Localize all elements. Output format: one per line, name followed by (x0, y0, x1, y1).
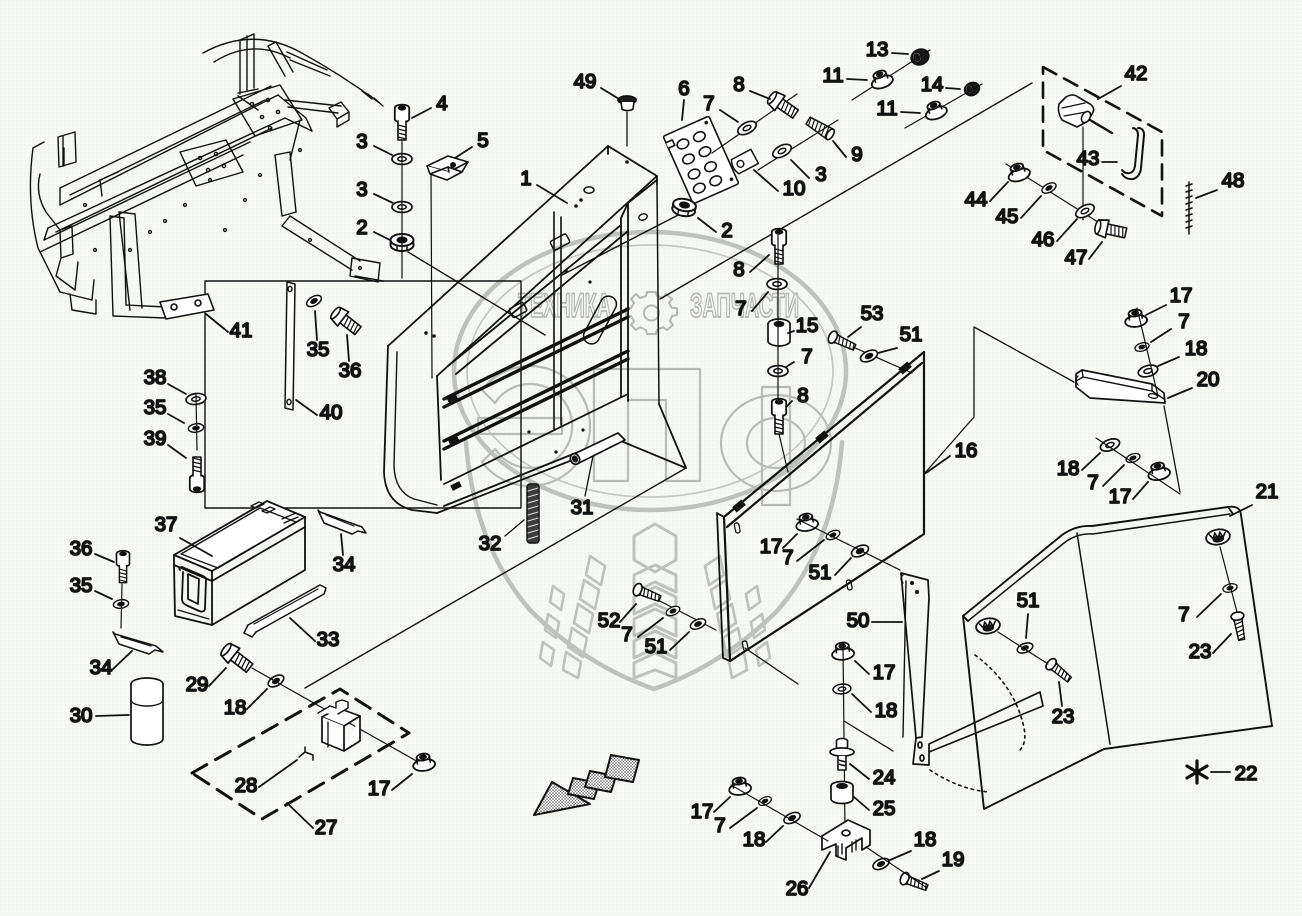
svg-text:3: 3 (356, 178, 367, 201)
svg-text:51: 51 (809, 561, 832, 584)
svg-text:2: 2 (721, 219, 732, 242)
svg-text:11: 11 (876, 97, 897, 120)
svg-text:27: 27 (315, 816, 338, 839)
svg-text:35: 35 (144, 396, 167, 419)
svg-text:7: 7 (782, 546, 793, 569)
svg-text:16: 16 (955, 439, 978, 462)
svg-text:24: 24 (873, 766, 896, 789)
svg-text:35: 35 (307, 338, 330, 361)
svg-text:17: 17 (691, 800, 714, 823)
svg-text:49: 49 (574, 70, 597, 93)
svg-text:23: 23 (1052, 705, 1075, 728)
svg-text:47: 47 (1065, 246, 1088, 269)
svg-text:34: 34 (90, 656, 113, 679)
svg-text:17: 17 (1170, 284, 1193, 307)
svg-text:41: 41 (230, 319, 253, 342)
svg-text:23: 23 (1189, 640, 1212, 663)
svg-text:25: 25 (873, 797, 896, 820)
svg-text:45: 45 (996, 205, 1019, 228)
svg-text:35: 35 (70, 574, 93, 597)
svg-text:18: 18 (1185, 337, 1208, 360)
svg-text:18: 18 (224, 696, 247, 719)
svg-text:8: 8 (797, 384, 808, 407)
svg-text:7: 7 (621, 623, 632, 646)
svg-text:18: 18 (1057, 457, 1080, 480)
svg-text:13: 13 (866, 38, 889, 61)
svg-text:37: 37 (155, 513, 178, 536)
svg-text:7: 7 (801, 345, 812, 368)
svg-text:46: 46 (1032, 228, 1055, 251)
svg-text:42: 42 (1125, 62, 1148, 85)
svg-text:6: 6 (678, 77, 689, 100)
svg-text:51: 51 (1017, 589, 1040, 612)
svg-text:ТЕХНИКА: ТЕХНИКА (518, 287, 611, 325)
svg-text:36: 36 (70, 537, 93, 560)
svg-text:53: 53 (861, 302, 884, 325)
svg-text:50: 50 (847, 609, 870, 632)
svg-text:7: 7 (1178, 603, 1189, 626)
svg-text:18: 18 (914, 828, 937, 851)
svg-text:21: 21 (1256, 480, 1279, 503)
svg-text:7: 7 (714, 814, 725, 837)
svg-text:7: 7 (735, 297, 746, 320)
svg-text:7: 7 (1087, 471, 1098, 494)
svg-text:17: 17 (368, 777, 391, 800)
svg-text:31: 31 (571, 496, 594, 519)
svg-text:43: 43 (1077, 147, 1100, 170)
svg-text:38: 38 (144, 366, 167, 389)
svg-text:19: 19 (942, 848, 965, 871)
svg-text:44: 44 (965, 188, 988, 211)
svg-text:26: 26 (786, 877, 809, 900)
svg-text:22: 22 (1235, 762, 1258, 785)
svg-text:8: 8 (733, 73, 744, 96)
svg-text:17: 17 (1109, 485, 1132, 508)
svg-text:8: 8 (733, 258, 744, 281)
svg-text:5: 5 (477, 129, 488, 152)
svg-text:14: 14 (921, 73, 944, 96)
svg-text:36: 36 (339, 359, 362, 382)
svg-text:20: 20 (1197, 368, 1220, 391)
svg-text:33: 33 (317, 628, 340, 651)
svg-text:1: 1 (520, 167, 531, 190)
svg-text:52: 52 (598, 609, 621, 632)
svg-text:7: 7 (703, 92, 714, 115)
svg-text:40: 40 (320, 401, 343, 424)
svg-text:2: 2 (356, 216, 367, 239)
svg-text:34: 34 (333, 553, 356, 576)
svg-text:30: 30 (70, 704, 93, 727)
svg-text:18: 18 (875, 699, 898, 722)
svg-text:39: 39 (144, 427, 167, 450)
svg-text:3: 3 (815, 163, 826, 186)
svg-text:3: 3 (356, 130, 367, 153)
svg-text:51: 51 (900, 323, 923, 346)
svg-text:11: 11 (822, 64, 843, 87)
svg-text:28: 28 (235, 774, 258, 797)
svg-text:4: 4 (436, 92, 447, 115)
svg-text:51: 51 (645, 635, 668, 658)
svg-text:17: 17 (873, 661, 896, 684)
svg-text:10: 10 (783, 177, 806, 200)
svg-text:32: 32 (479, 532, 502, 555)
svg-text:18: 18 (743, 828, 766, 851)
svg-text:17: 17 (760, 535, 783, 558)
svg-text:48: 48 (1222, 169, 1245, 192)
svg-text:9: 9 (851, 143, 862, 166)
svg-text:7: 7 (1178, 310, 1189, 333)
svg-text:29: 29 (186, 673, 209, 696)
svg-text:15: 15 (796, 314, 819, 337)
